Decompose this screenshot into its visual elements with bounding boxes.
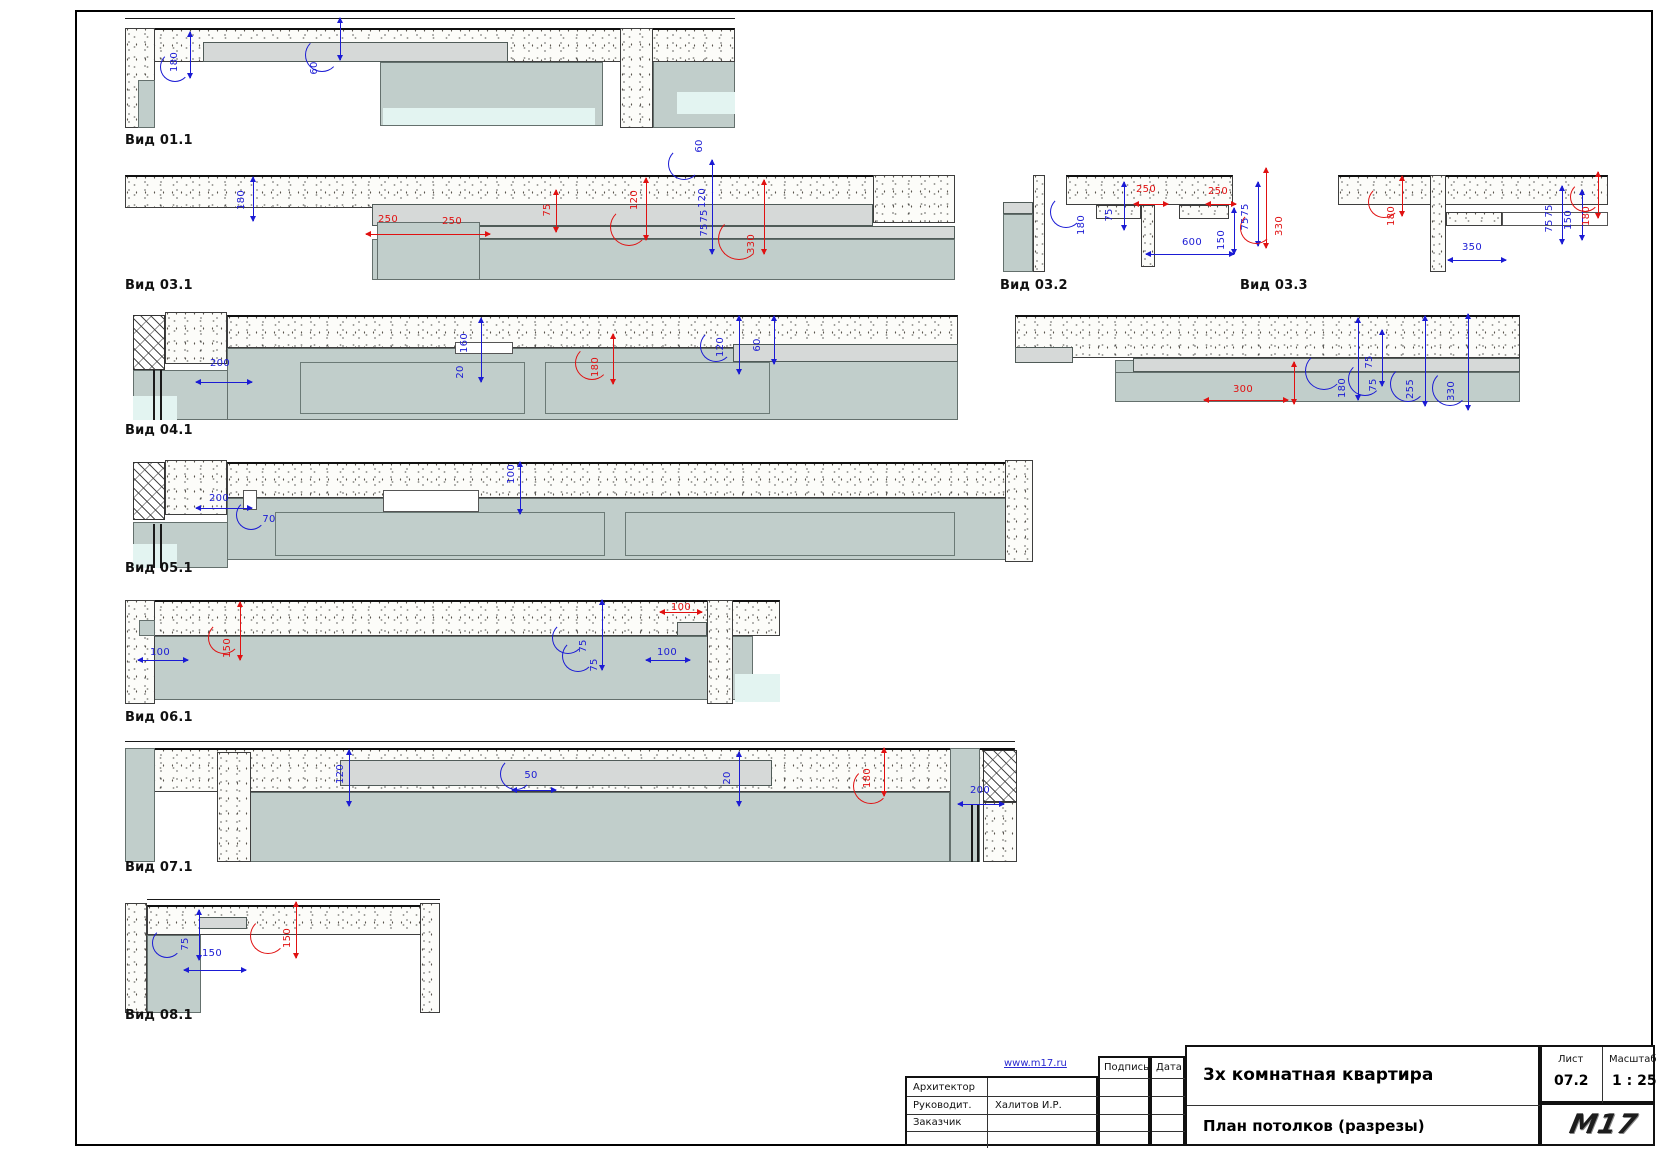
concrete-wall [1033,175,1045,272]
titleblock-date-column: Дата [1150,1056,1185,1146]
masonry-hatch [133,315,165,370]
dimension-value: 350 [1462,243,1482,253]
dimension-value: 75 [700,223,710,236]
view-label-08-1: Вид 08.1 [125,1008,193,1023]
dimension-line [1204,400,1288,401]
ceiling-panel [733,344,958,362]
titleblock-sheet-scale: Лист 07.2 Масштаб 1 : 25 [1540,1045,1655,1103]
dimension-value: 330 [747,234,757,254]
panel-joint [300,362,525,414]
dimension-value: 160 [460,333,470,353]
dimension-line [340,18,341,60]
wall-fill [139,620,155,636]
dimension-value: 120 [716,337,726,357]
titleblock-logo-cell: M17 [1540,1103,1655,1146]
section-view-04-1r [1015,300,1520,426]
drawing-line [125,741,1015,742]
view-label-01-1: Вид 01.1 [125,133,193,148]
wall-fill [153,636,753,700]
drawing-line [977,804,979,862]
dimension-line [556,190,557,232]
dimension-line [613,334,614,384]
scale-label: Масштаб [1609,1054,1657,1065]
leader-arc [152,928,182,958]
dimension-value: 150 [202,949,222,959]
dimension-line [253,177,254,221]
concrete-wall [620,28,653,128]
date-col-header: Дата [1156,1062,1182,1073]
dimension-value: 75 [1365,355,1375,368]
dimension-value: 75 [1545,219,1555,232]
dimension-value: 75 [1369,378,1379,391]
ceiling-panel [1003,202,1033,214]
titleblock-main: 3х комнатная квартира План потолков (раз… [1185,1045,1540,1146]
dimension-value: 255 [1406,379,1416,399]
dimension-value: 75 [579,639,589,652]
sheet-label: Лист [1558,1054,1583,1065]
dimension-value: 60 [695,139,705,152]
project-title: 3х комнатная квартира [1203,1065,1433,1085]
dimension-line [739,752,740,806]
panel-joint [625,512,955,556]
view-label-03-1: Вид 03.1 [125,278,193,293]
view-label-06-1: Вид 06.1 [125,710,193,725]
dimension-line [764,180,765,254]
dimension-line [712,160,713,254]
drawing-line [153,370,155,420]
dimension-value: 250 [1136,185,1156,195]
panel-joint [275,512,605,556]
sheet-number: 07.2 [1554,1073,1589,1089]
dimension-line [366,234,490,235]
concrete-wall [1179,205,1229,219]
dimension-value: 330 [1447,381,1457,401]
dimension-line [296,902,297,958]
highlight-fill [735,674,780,702]
dimension-line [646,660,690,661]
dimension-value: 180 [170,52,180,72]
drawing-sheet: 1806018025025075120601207575330180752502… [0,0,1680,1167]
dimension-value: 150 [223,638,233,658]
ceiling-panel [340,760,772,786]
dimension-line [196,382,252,383]
dimension-value: 250 [442,217,462,227]
dimension-value: 250 [1208,187,1228,197]
leader-arc [610,208,648,246]
dimension-value: 200 [210,359,230,369]
drawing-line [971,804,973,862]
dimension-line [602,600,603,670]
drawing-line [147,899,440,900]
view-label-03-3: Вид 03.3 [1240,278,1308,293]
dimension-value: 330 [1275,216,1285,236]
dimension-line [240,602,241,660]
dimension-value: 150 [1217,230,1227,250]
wall-fill [950,748,980,862]
dimension-line [958,804,1004,805]
dimension-value: 75 [1241,217,1251,230]
dimension-value: 120 [336,764,346,784]
titleblock-left-table: Архитектор Руководит. Халитов И.Р. Заказ… [905,1076,1098,1146]
scale-value: 1 : 25 [1612,1073,1657,1089]
dimension-line [190,32,191,78]
concrete-slab [227,462,1033,498]
dimension-line [1382,330,1383,386]
dimension-value: 120 [630,190,640,210]
concrete-slab [1015,315,1520,358]
ceiling-panel [677,622,707,636]
dimension-value: 180 [1387,206,1397,226]
titleblock-sign-column: Подпись [1098,1056,1150,1146]
leader-arc [668,148,700,180]
dimension-line [481,318,482,382]
view-label-04-1: Вид 04.1 [125,423,193,438]
wall-fill [217,792,950,862]
recess [1502,212,1608,226]
dimension-line [1146,254,1234,255]
dimension-value: 75 [590,658,600,671]
dimension-line [1206,204,1236,205]
dimension-line [138,660,188,661]
wall-fill [1003,214,1033,272]
dimension-line [739,316,740,374]
highlight-fill [133,396,177,420]
dimension-value: 75 [181,937,191,950]
dimension-line [184,970,246,971]
section-view-04-1 [125,300,958,426]
dimension-line [1234,208,1235,254]
section-view-01-1 [125,16,735,142]
dimension-line [1124,182,1125,230]
ceiling-panel [199,917,247,929]
dimension-value: 300 [1233,385,1253,395]
dimension-line [1425,316,1426,406]
concrete-wall [707,600,733,704]
highlight-fill [383,108,595,125]
dimension-value: 100 [671,603,691,613]
dimension-line [520,462,521,514]
website-link[interactable]: www.m17.ru [1004,1058,1067,1069]
dimension-value: 75 [700,209,710,222]
dimension-value: 100 [507,464,517,484]
dimension-value: 100 [150,648,170,658]
dimension-value: 20 [723,771,733,784]
concrete-wall [165,312,227,364]
concrete-wall [1430,175,1446,272]
dimension-value: 75 [1241,203,1251,216]
dimension-line [1134,204,1168,205]
row-label-architect: Архитектор [913,1082,975,1093]
row-label-client: Заказчик [913,1117,961,1128]
dimension-value: 200 [970,786,990,796]
dimension-value: 180 [1077,215,1087,235]
wall-fill [377,222,480,280]
masonry-hatch [133,462,165,520]
dimension-value: 180 [1338,378,1348,398]
view-label-07-1: Вид 07.1 [125,860,193,875]
dimension-value: 600 [1182,238,1202,248]
concrete-wall [420,903,440,1013]
dimension-line [1468,314,1469,410]
dimension-value: 100 [657,648,677,658]
drawing-title: План потолков (разрезы) [1203,1117,1425,1135]
dimension-value: 180 [1582,206,1592,226]
dimension-line [1402,176,1403,216]
dimension-value: 150 [283,928,293,948]
dimension-value: 20 [456,365,466,378]
recess [383,490,479,512]
dimension-value: 150 [1564,210,1574,230]
drawing-line [160,370,162,420]
dimension-line [512,790,556,791]
concrete-wall [125,903,147,1013]
wall-fill [138,80,155,128]
dimension-line [1448,260,1506,261]
ceiling-panel [203,42,508,62]
dimension-line [349,750,350,806]
dimension-value: 60 [310,61,320,74]
leader-arc [250,918,286,954]
concrete-wall [983,802,1017,862]
m17-logo: M17 [1567,1109,1641,1140]
dimension-value: 75 [1545,204,1555,217]
dimension-value: 180 [237,190,247,210]
concrete-wall [873,175,955,223]
wall-fill [125,748,155,862]
highlight-fill [677,92,735,114]
view-label-05-1: Вид 05.1 [125,561,193,576]
view-label-03-2: Вид 03.2 [1000,278,1068,293]
dimension-value: 180 [591,357,601,377]
drawing-line [125,18,735,19]
concrete-wall [1096,205,1141,219]
row-label-lead: Руководит. [913,1100,972,1111]
dimension-value: 120 [698,188,708,208]
concrete-wall [1446,212,1502,226]
dimension-line [199,910,200,960]
ceiling-panel [1015,347,1073,363]
concrete-wall [217,752,251,862]
concrete-wall [1005,460,1033,562]
dimension-value: 75 [543,203,553,216]
concrete-slab [147,905,440,935]
dimension-value: 250 [378,215,398,225]
dimension-value: 70 [262,515,275,525]
dimension-line [774,316,775,364]
dimension-value: 180 [863,768,873,788]
dimension-line [1294,362,1295,404]
lead-name: Халитов И.Р. [995,1100,1062,1111]
dimension-value: 60 [753,338,763,351]
concrete-wall [1141,205,1155,267]
section-view-07-1 [125,738,1015,864]
sign-col-header: Подпись [1104,1062,1149,1073]
dimension-value: 200 [209,494,229,504]
dimension-value: 75 [1105,208,1115,221]
dimension-value: 50 [524,771,537,781]
